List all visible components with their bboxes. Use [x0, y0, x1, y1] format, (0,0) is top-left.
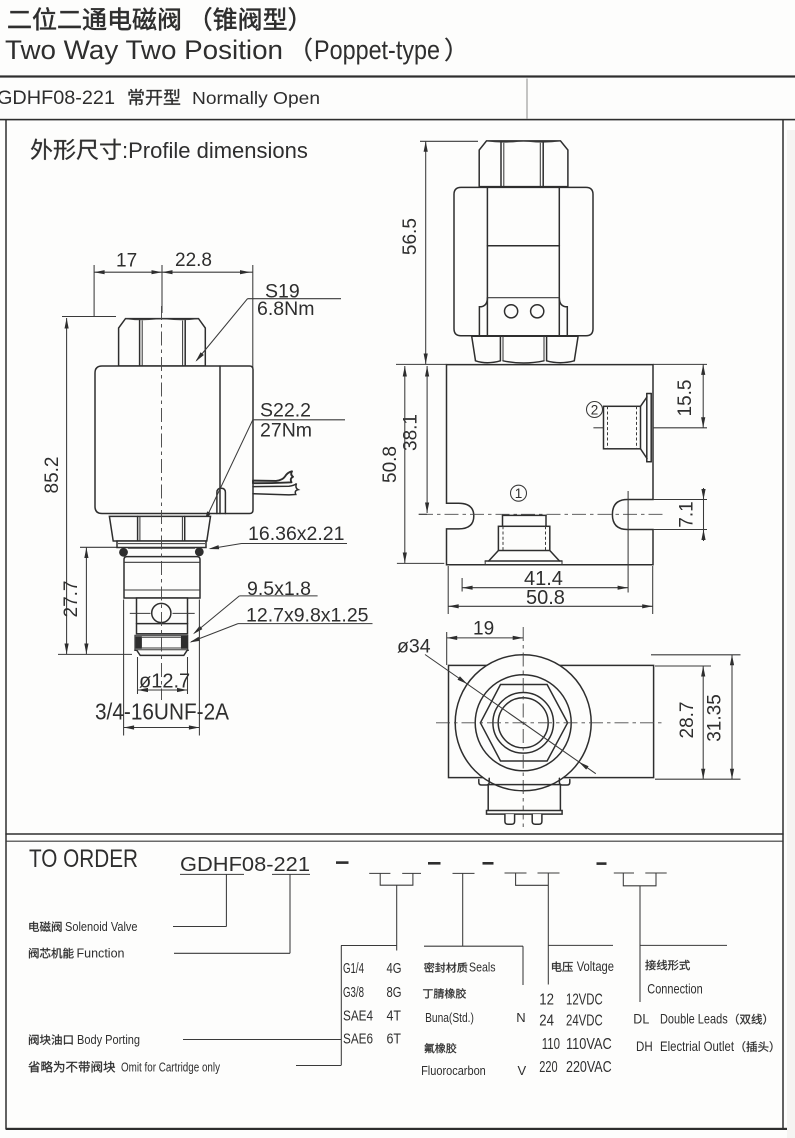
svg-text:9.5x1.8: 9.5x1.8 [247, 578, 311, 600]
svg-text:12VDC: 12VDC [566, 992, 603, 1009]
svg-text:Normally Open: Normally Open [192, 88, 320, 108]
svg-text:Connection: Connection [647, 981, 702, 997]
svg-text:G1/4: G1/4 [343, 961, 364, 977]
svg-text:220: 220 [539, 1059, 558, 1076]
svg-text:16.36x2.21: 16.36x2.21 [248, 523, 345, 545]
svg-text:1: 1 [515, 486, 523, 501]
svg-text:V: V [518, 1063, 527, 1078]
svg-text:38.1: 38.1 [401, 414, 422, 451]
svg-text:27Nm: 27Nm [260, 420, 312, 442]
svg-text:50.8: 50.8 [380, 446, 401, 483]
svg-text:GDHF08-221: GDHF08-221 [0, 87, 115, 109]
svg-text:27.7: 27.7 [61, 581, 82, 618]
svg-text:ø12.7: ø12.7 [139, 671, 190, 693]
svg-text:6.8Nm: 6.8Nm [257, 298, 314, 320]
svg-text:G3/8: G3/8 [343, 985, 364, 1001]
svg-text:ø34: ø34 [397, 636, 431, 658]
svg-text:S22.2: S22.2 [260, 400, 311, 422]
svg-text:8G: 8G [387, 985, 402, 1001]
svg-text:28.7: 28.7 [677, 702, 698, 739]
svg-text:24: 24 [539, 1013, 554, 1030]
svg-text:85.2: 85.2 [42, 457, 63, 494]
svg-text:17: 17 [116, 251, 137, 272]
svg-text:110VAC: 110VAC [566, 1036, 612, 1053]
svg-text:56.5: 56.5 [400, 218, 421, 255]
svg-text:Function: Function [77, 946, 125, 961]
svg-text:TO ORDER: TO ORDER [29, 845, 138, 873]
svg-text:4T: 4T [387, 1009, 402, 1025]
svg-text:Buna(Std.): Buna(Std.) [425, 1010, 474, 1025]
svg-text:Poppet-type: Poppet-type [314, 35, 440, 65]
svg-text:110: 110 [542, 1036, 561, 1053]
svg-text:Voltage: Voltage [577, 958, 614, 974]
svg-text:SAE4: SAE4 [343, 1009, 373, 1025]
svg-text:Fluorocarbon: Fluorocarbon [421, 1063, 486, 1078]
svg-text:Double Leads: Double Leads [660, 1011, 728, 1027]
svg-text:31.35: 31.35 [705, 694, 726, 742]
svg-text:Electrial Outlet: Electrial Outlet [660, 1038, 734, 1054]
svg-text:Solenoid Valve: Solenoid Valve [65, 919, 138, 934]
svg-text:220VAC: 220VAC [566, 1059, 612, 1076]
svg-text:22.8: 22.8 [175, 250, 212, 271]
svg-text:DL: DL [633, 1011, 649, 1027]
svg-text:GDHF08-221: GDHF08-221 [180, 853, 310, 876]
svg-text:Omit for Cartridge only: Omit for Cartridge only [121, 1060, 220, 1075]
svg-text:SAE6: SAE6 [343, 1032, 373, 1048]
svg-text:Body Porting: Body Porting [77, 1032, 140, 1047]
svg-text:Seals: Seals [469, 960, 496, 975]
svg-text:19: 19 [473, 619, 494, 640]
svg-text:24VDC: 24VDC [566, 1013, 603, 1030]
svg-text::Profile dimensions: :Profile dimensions [122, 138, 308, 163]
svg-text:3/4-16UNF-2A: 3/4-16UNF-2A [95, 699, 230, 725]
svg-text:Two Way Two Position: Two Way Two Position [5, 35, 283, 65]
svg-text:12: 12 [539, 992, 554, 1009]
svg-text:2: 2 [591, 402, 599, 417]
svg-text:N: N [516, 1010, 525, 1025]
svg-text:50.8: 50.8 [526, 587, 565, 609]
svg-text:6T: 6T [387, 1032, 402, 1048]
svg-text:4G: 4G [387, 961, 402, 977]
svg-text:15.5: 15.5 [675, 380, 696, 417]
svg-text:7.1: 7.1 [677, 501, 698, 527]
svg-text:DH: DH [636, 1038, 653, 1054]
